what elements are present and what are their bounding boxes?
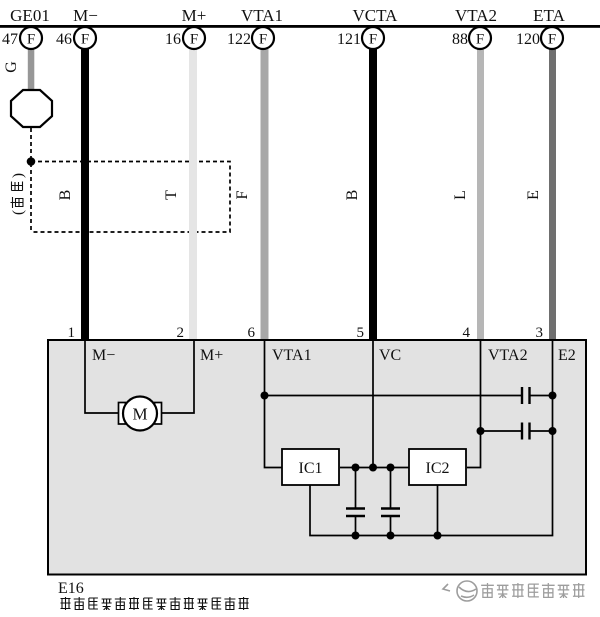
svg-text:): ) — [11, 173, 27, 178]
svg-text:VCTA: VCTA — [353, 6, 399, 25]
svg-text:VTA1: VTA1 — [272, 347, 312, 364]
svg-text:5: 5 — [357, 325, 365, 341]
svg-text:F: F — [369, 32, 377, 48]
svg-text:E16: E16 — [58, 580, 84, 597]
svg-text:16: 16 — [165, 31, 181, 48]
svg-text:IC2: IC2 — [426, 460, 450, 477]
svg-text:F: F — [476, 32, 484, 48]
svg-text:121: 121 — [337, 31, 361, 48]
svg-text:IC1: IC1 — [299, 460, 323, 477]
svg-text:4: 4 — [463, 325, 471, 341]
svg-text:F: F — [81, 32, 89, 48]
svg-text:VTA1: VTA1 — [241, 6, 283, 25]
svg-text:M+: M+ — [182, 6, 207, 25]
svg-text:88: 88 — [452, 31, 468, 48]
svg-text:E2: E2 — [558, 347, 576, 364]
svg-text:F: F — [259, 32, 267, 48]
svg-text:VTA2: VTA2 — [488, 347, 528, 364]
svg-text:F: F — [27, 32, 35, 48]
svg-text:46: 46 — [56, 31, 72, 48]
svg-text:2: 2 — [177, 325, 185, 341]
svg-text:B: B — [57, 190, 74, 201]
svg-text:F: F — [190, 32, 198, 48]
svg-text:M: M — [132, 405, 147, 424]
svg-text:M−: M− — [92, 347, 115, 364]
svg-text:GE01: GE01 — [10, 6, 50, 25]
svg-text:6: 6 — [248, 325, 256, 341]
svg-text:B: B — [344, 190, 361, 201]
svg-text:T: T — [163, 190, 180, 200]
svg-text:G: G — [3, 61, 20, 73]
svg-text:F: F — [548, 32, 556, 48]
svg-text:E: E — [525, 190, 542, 200]
svg-text:F: F — [234, 190, 251, 199]
svg-text:47: 47 — [2, 31, 18, 48]
svg-text:ETA: ETA — [533, 6, 565, 25]
svg-text:M−: M− — [73, 6, 98, 25]
svg-text:1: 1 — [68, 325, 76, 341]
svg-text:VC: VC — [379, 347, 401, 364]
svg-text:3: 3 — [536, 325, 544, 341]
svg-text:120: 120 — [516, 31, 540, 48]
svg-text:122: 122 — [227, 31, 251, 48]
svg-text:M+: M+ — [200, 347, 223, 364]
svg-text:L: L — [452, 190, 469, 200]
svg-text:(: ( — [11, 210, 27, 215]
svg-text:VTA2: VTA2 — [455, 6, 497, 25]
